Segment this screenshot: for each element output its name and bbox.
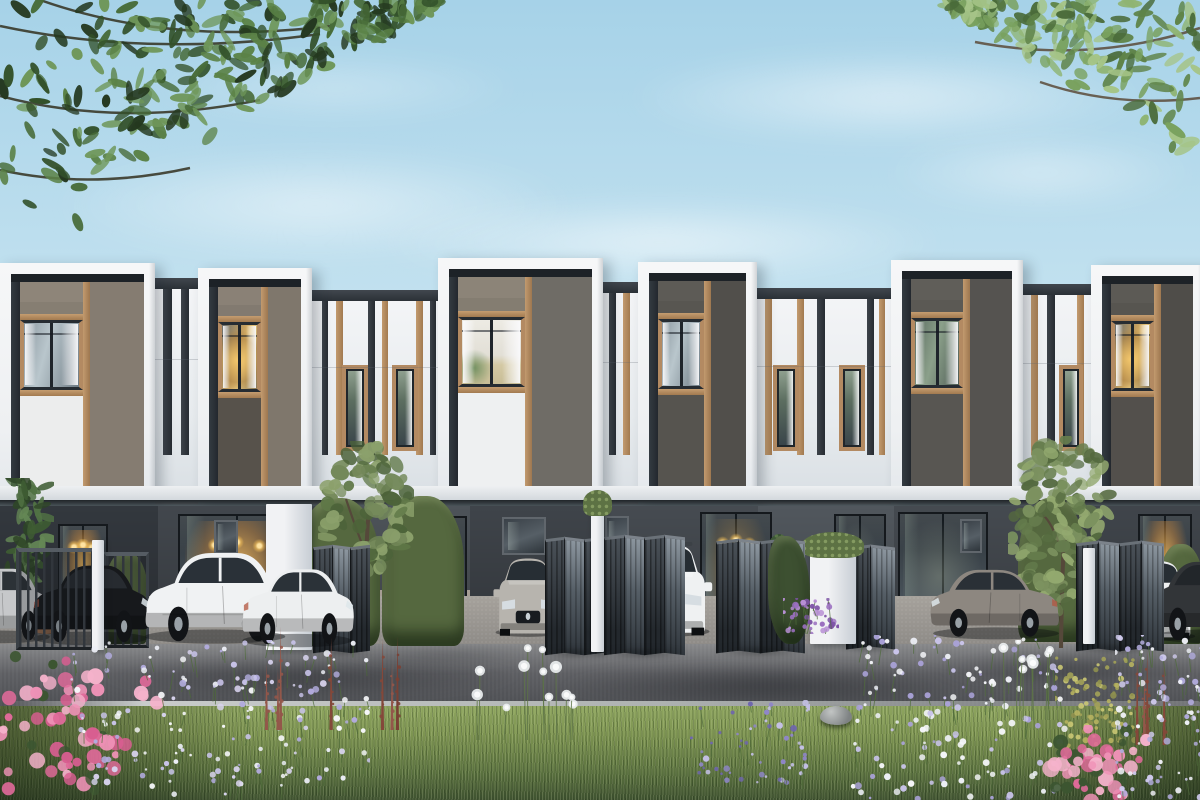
upstairs-window: [458, 317, 525, 387]
planter-greenery: [802, 532, 864, 558]
gate-fold-panel: [644, 535, 665, 656]
gate-fold-panel: [870, 544, 895, 649]
gate-post: [92, 540, 104, 650]
flower-cluster-mixed: [783, 598, 839, 634]
window-curtain-right: [945, 322, 958, 383]
window-curtain-right: [246, 326, 257, 387]
facade-striped-section: [757, 288, 891, 504]
unit-recess: [902, 271, 1012, 487]
overhanging-tree-canopy-left: [0, 0, 450, 235]
overhanging-tree-canopy-right: [935, 0, 1200, 160]
upstairs-window: [911, 318, 963, 388]
spandrel-panel: [458, 393, 525, 445]
gate-shadow: [600, 648, 688, 658]
navy-edge: [11, 274, 20, 487]
wood-divider: [1154, 276, 1161, 487]
townhouse-unit: [198, 268, 312, 500]
wood-batten: [1031, 295, 1038, 455]
navy-edge: [902, 271, 911, 487]
unit-left-column: [218, 279, 261, 487]
wood-divider: [963, 271, 970, 487]
recess-top-shadow: [449, 269, 592, 277]
townhouse-unit: [438, 258, 603, 500]
narrow-window-curtain: [355, 371, 362, 445]
upstairs-window: [20, 320, 83, 390]
window-curtain-left: [1116, 325, 1123, 386]
flat-panel: [90, 274, 144, 487]
wood-divider: [83, 274, 90, 487]
spandrel-fill: [458, 445, 525, 487]
window-curtain-right: [688, 323, 699, 384]
unit-left-column: [911, 271, 963, 487]
unit-recess: [11, 274, 144, 487]
spandrel-panel: [658, 395, 704, 447]
upstairs-window: [218, 322, 261, 392]
spandrel-fill: [658, 447, 704, 487]
frame-right-shade: [751, 262, 757, 500]
navy-edge: [449, 269, 458, 487]
flat-panel: [268, 279, 301, 487]
slat-panel-dense: [20, 302, 83, 314]
wood-batten: [623, 293, 630, 455]
narrow-window-curtain: [852, 371, 859, 445]
flat-panel: [1161, 276, 1193, 487]
narrow-window: [392, 365, 418, 451]
window-curtain-left: [25, 324, 36, 385]
parapet-coping: [155, 278, 198, 289]
gate-fold-panel: [624, 535, 645, 656]
driveway-gate-folded: [604, 536, 684, 654]
flower-cluster-spikes: [265, 625, 405, 730]
flower-cluster-puffs: [470, 640, 580, 740]
dark-batten: [817, 299, 825, 455]
frame-right-shade: [306, 268, 312, 500]
dark-batten: [1047, 295, 1055, 455]
slat-panel-dense: [1111, 303, 1154, 315]
parapet-coping: [757, 288, 891, 299]
narrow-window-curtain: [786, 371, 793, 445]
slat-panel-dense: [658, 301, 704, 313]
townhouse-unit: [0, 263, 155, 500]
narrow-window: [342, 365, 368, 451]
wood-divider: [704, 273, 711, 487]
dark-batten: [322, 301, 328, 455]
flat-panel: [532, 269, 592, 487]
slat-panel-dense: [458, 298, 525, 311]
upstairs-window: [658, 319, 704, 389]
facade-seam: [155, 359, 198, 360]
wood-divider: [261, 279, 268, 487]
window-curtain-right: [502, 321, 520, 382]
gate-fold-panel: [738, 539, 761, 654]
narrow-window-curtain: [405, 371, 412, 445]
dark-batten: [368, 301, 375, 455]
gate-fold-panel: [604, 535, 625, 656]
upstairs-window: [1111, 321, 1154, 391]
flower-cluster-puffs: [990, 640, 1060, 720]
slat-panel-dense: [218, 305, 261, 316]
flat-panel: [711, 273, 746, 487]
dark-batten: [163, 289, 172, 455]
townhouse-unit: [891, 260, 1023, 500]
dark-batten: [181, 289, 189, 455]
parapet-coping: [1023, 284, 1091, 295]
gate-fold-panel: [664, 535, 685, 656]
window-curtain-left: [663, 323, 671, 384]
dark-batten: [867, 299, 874, 455]
slat-panel-dense: [911, 300, 963, 312]
flat-panel: [970, 271, 1012, 487]
frame-right-shade: [149, 263, 155, 500]
recess-top-shadow: [11, 274, 144, 282]
spandrel-fill: [218, 450, 261, 487]
wood-batten: [879, 299, 885, 455]
wood-divider: [525, 269, 532, 487]
dark-batten: [609, 293, 616, 455]
window-curtain-left: [463, 321, 475, 382]
gate-fold-panel: [716, 539, 739, 654]
ground-small-window: [960, 519, 982, 553]
unit-left-column: [658, 273, 704, 487]
unit-left-column: [20, 274, 83, 487]
wood-batten: [382, 301, 388, 455]
spandrel-panel: [20, 396, 83, 448]
gate-fold-panel: [564, 537, 584, 655]
parapet-coping: [603, 282, 638, 293]
frame-right-shade: [597, 258, 603, 500]
recess-top-shadow: [1102, 276, 1193, 284]
unit-recess: [649, 273, 746, 487]
townhouse-exterior-render: [0, 0, 1200, 800]
window-curtain-left: [916, 322, 925, 383]
car-sedan: [928, 558, 1064, 640]
narrow-window-curtain: [1071, 371, 1077, 445]
facade-striped-section: [155, 278, 198, 504]
navy-edge: [649, 273, 658, 487]
narrow-window: [839, 365, 865, 451]
window-curtain-right: [61, 324, 78, 385]
driveway-gate-closed: [16, 548, 94, 650]
recess-top-shadow: [649, 273, 746, 281]
small-window-reflection: [508, 522, 520, 551]
ground-small-window: [502, 517, 546, 555]
unit-recess: [449, 269, 592, 487]
facade-seam: [312, 367, 438, 368]
spandrel-fill: [911, 446, 963, 487]
spandrel-panel: [911, 394, 963, 446]
townhouse-unit: [638, 262, 757, 500]
recess-top-shadow: [902, 271, 1012, 279]
facade-striped-section: [603, 282, 638, 504]
wood-batten: [765, 299, 772, 455]
gate-post: [1083, 548, 1095, 644]
facade-seam: [603, 362, 638, 363]
gate-fold-panel: [545, 537, 565, 655]
gate-shadow: [712, 646, 808, 656]
flower-cluster-mixed: [1115, 635, 1200, 800]
gate-post: [591, 506, 604, 652]
garden-rock: [820, 706, 852, 725]
window-curtain-right: [1139, 325, 1150, 386]
facade-seam: [757, 366, 891, 367]
dark-batten: [430, 301, 436, 455]
parapet-coping: [312, 290, 438, 301]
unit-recess: [209, 279, 301, 487]
navy-edge: [209, 279, 218, 487]
narrow-window: [773, 365, 799, 451]
facade-seam: [1023, 363, 1091, 364]
flower-cluster-mixed: [690, 700, 810, 790]
window-curtain-left: [223, 326, 230, 387]
small-window-reflection: [964, 523, 969, 548]
recess-top-shadow: [209, 279, 301, 287]
spandrel-panel: [218, 398, 261, 450]
unit-left-column: [458, 269, 525, 487]
planter-greenery: [583, 490, 612, 516]
